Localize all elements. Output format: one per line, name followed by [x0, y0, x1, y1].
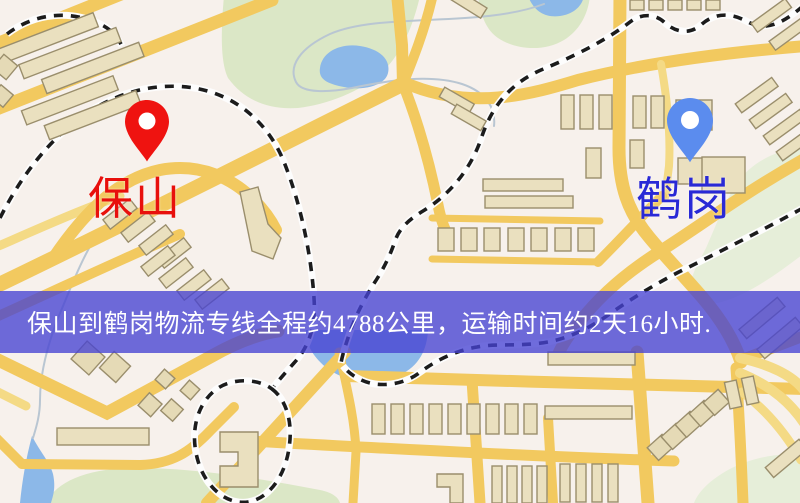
destination-pin-hole: [681, 111, 699, 129]
route-banner: 保山到鹤岗物流专线全程约4788公里，运输时间约2天16小时.: [0, 291, 800, 353]
map-image: 保山 鹤岗 保山到鹤岗物流专线全程约4788公里，运输时间约2天16小时.: [0, 0, 800, 503]
destination-label: 鹤岗: [636, 177, 732, 223]
building-row-top-right: [630, 0, 720, 10]
route-banner-text: 保山到鹤岗物流专线全程约4788公里，运输时间约2天16小时.: [0, 304, 711, 340]
map-canvas: [0, 0, 800, 503]
origin-label: 保山: [88, 177, 182, 222]
origin-pin-hole: [139, 113, 156, 130]
long-building: [57, 428, 149, 445]
